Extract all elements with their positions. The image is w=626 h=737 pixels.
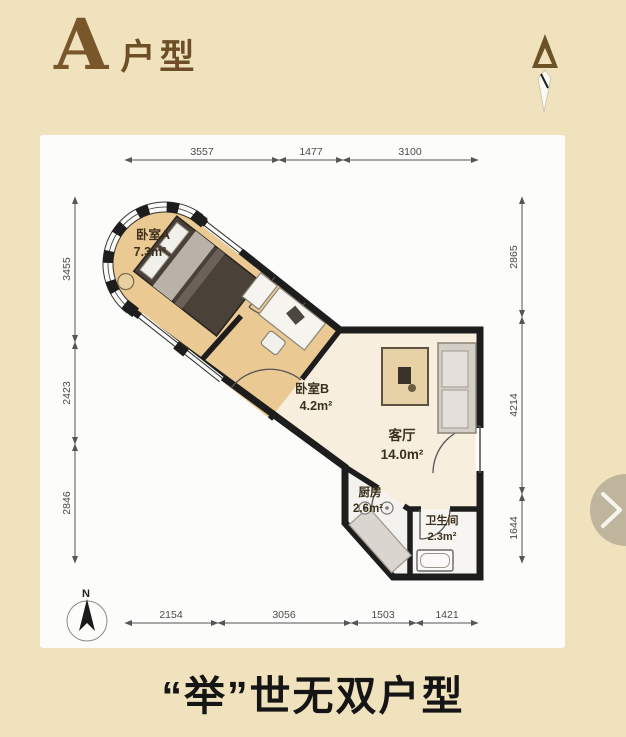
carousel-next-button[interactable] xyxy=(590,474,626,546)
room-label-kitchen-area: 2.6m² xyxy=(353,503,383,515)
svg-text:1421: 1421 xyxy=(435,609,459,621)
room-label-bedroomA-name: 卧室A xyxy=(136,227,170,242)
title-suffix: 户型 xyxy=(120,29,198,80)
svg-text:1477: 1477 xyxy=(299,146,323,158)
room-label-kitchen-name: 厨房 xyxy=(359,485,382,499)
floorplan-sheet: 卧室A 7.3m² 卧室B 4.2m² 客厅 14.0m² 厨房 2.6m² 卫… xyxy=(40,135,565,648)
room-label-bathroom-name: 卫生间 xyxy=(426,513,459,527)
page-title: A 户型 xyxy=(54,10,198,80)
room-label-bathroom-area: 2.3m² xyxy=(428,531,457,543)
bathtub xyxy=(417,550,453,571)
svg-text:4214: 4214 xyxy=(508,393,520,417)
coffee-table xyxy=(398,367,411,384)
svg-text:3557: 3557 xyxy=(190,146,214,158)
north-compass-icon: N xyxy=(67,588,107,641)
room-label-bedroomA-area: 7.3m² xyxy=(134,245,167,259)
svg-text:2423: 2423 xyxy=(61,381,73,405)
room-label-living-area: 14.0m² xyxy=(381,447,424,462)
floorplan-canvas: 卧室A 7.3m² 卧室B 4.2m² 客厅 14.0m² 厨房 2.6m² 卫… xyxy=(40,135,565,648)
svg-text:3100: 3100 xyxy=(398,146,422,158)
room-label-bedroomB-name: 卧室B xyxy=(295,381,329,396)
room-label-bedroomB-area: 4.2m² xyxy=(300,399,333,413)
svg-text:2154: 2154 xyxy=(159,609,183,621)
title-letter: A xyxy=(54,10,108,80)
map-pin-icon xyxy=(524,28,566,116)
svg-text:2865: 2865 xyxy=(508,245,520,269)
room-label-living-name: 客厅 xyxy=(388,427,416,443)
caption: “举”世无双户型 xyxy=(0,662,626,722)
chevron-right-icon xyxy=(596,488,626,532)
svg-text:2846: 2846 xyxy=(61,491,73,515)
svg-text:N: N xyxy=(82,588,90,600)
svg-text:1503: 1503 xyxy=(371,609,395,621)
svg-text:3056: 3056 xyxy=(272,609,296,621)
svg-text:1644: 1644 xyxy=(508,516,520,540)
svg-text:3455: 3455 xyxy=(61,257,73,281)
